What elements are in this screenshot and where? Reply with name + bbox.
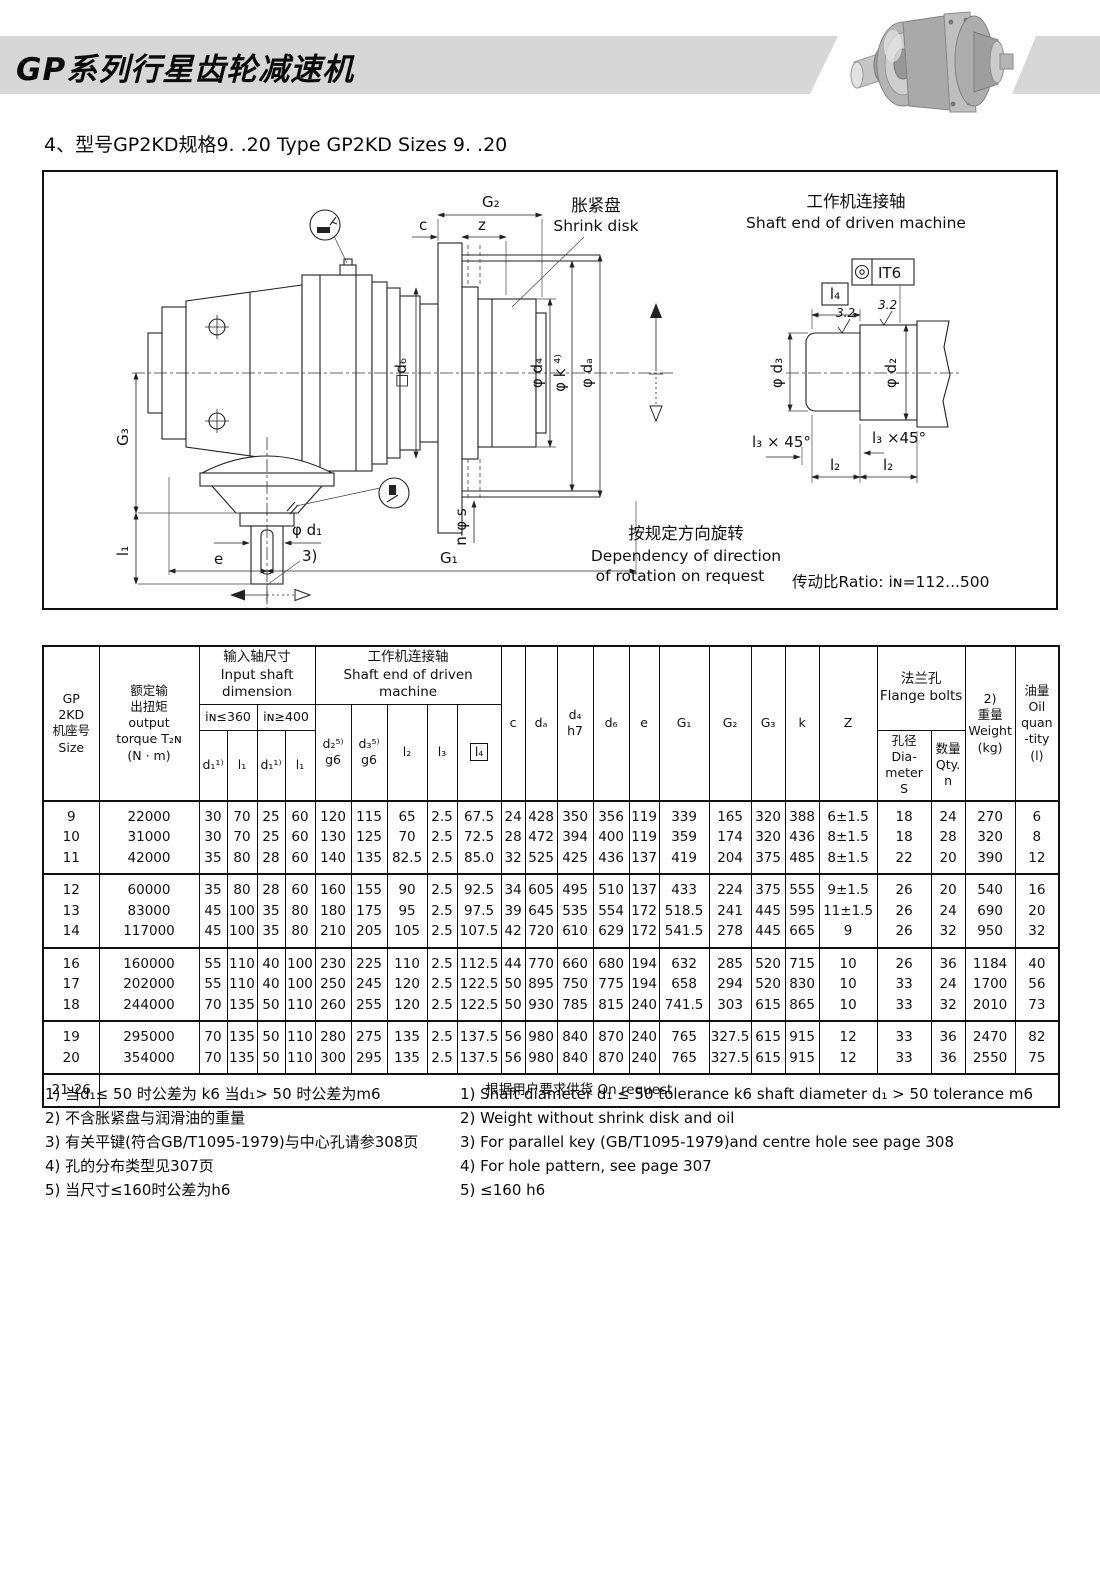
technical-drawing-box: G₂ c z G₃ l₁ e G₁ φ d₁: [42, 170, 1058, 610]
spec-cell: 280 300: [315, 1021, 351, 1074]
spec-cell: 119 119 137: [629, 801, 659, 875]
spec-cell: 6±1.5 8±1.5 8±1.5: [819, 801, 877, 875]
col-l3: l₃: [427, 704, 457, 801]
spec-cell: 80 100 100: [227, 874, 257, 948]
spec-cell: 60 80 80: [285, 874, 315, 948]
rotation-note-cn: 按规定方向旋转: [628, 524, 744, 543]
rotation-direction-arrow: [649, 303, 663, 421]
footnote-en-3: 3) For parallel key (GB/T1095-1979)and c…: [460, 1130, 1060, 1154]
spec-cell: 36 36: [931, 1021, 965, 1074]
dim-e: e: [214, 550, 223, 568]
dim-d2: φ d₂: [882, 358, 900, 388]
svg-text:3.2: 3.2: [836, 306, 855, 320]
col-d4: d₄ h7: [557, 646, 593, 801]
dim-d4: φ d₄: [528, 358, 546, 388]
spec-cell: 92.5 97.5 107.5: [457, 874, 501, 948]
spec-cell: 2.5 2.5 2.5: [427, 801, 457, 875]
col-d1-400: d₁¹⁾: [257, 730, 285, 801]
col-l1-400: l₁: [285, 730, 315, 801]
spec-cell: 40 56 73: [1015, 948, 1059, 1022]
dim-ns: n-φ s: [452, 508, 470, 546]
spec-cell: 100 100 110: [285, 948, 315, 1022]
dim-d3: φ d₃: [768, 358, 786, 388]
spec-table-body: 9 10 1122000 31000 4200030 30 3570 70 80…: [43, 801, 1059, 1075]
col-in360: iɴ≤360: [199, 704, 257, 730]
footnotes-cn: 1) 当d₁≤ 50 时公差为 k6 当d₁> 50 时公差为m6 2) 不含胀…: [45, 1082, 485, 1202]
col-bolt-dia: 孔径 Dia-meter S: [877, 730, 931, 801]
col-oil: 油量 Oil quan -tity (l): [1015, 646, 1059, 801]
spec-cell: 18 18 22: [877, 801, 931, 875]
spec-cell: 82 75: [1015, 1021, 1059, 1074]
spec-cell: 224 241 278: [709, 874, 751, 948]
dim-k: φ k ⁴⁾: [551, 354, 569, 392]
footnote-3-callout: 3): [302, 547, 317, 565]
spec-cell: 60000 83000 117000: [99, 874, 199, 948]
dim-d6: □d₆: [392, 358, 410, 388]
spec-cell: 50 50: [257, 1021, 285, 1074]
spec-cell: 433 518.5 541.5: [659, 874, 709, 948]
table-group-row: 19 20295000 35400070 70135 13550 50110 1…: [43, 1021, 1059, 1074]
spec-cell: 510 554 629: [593, 874, 629, 948]
shrink-disk-label-en: Shrink disk: [553, 217, 638, 235]
spec-cell: 70 70: [199, 1021, 227, 1074]
col-in400: iɴ≥400: [257, 704, 315, 730]
spec-cell: 270 320 390: [965, 801, 1015, 875]
table-group-row: 16 17 18160000 202000 24400055 55 70110 …: [43, 948, 1059, 1022]
footnotes-en: 1) Shaft diameter d₁ ≤ 50 tolerance k6 s…: [460, 1082, 1060, 1202]
col-e: e: [629, 646, 659, 801]
spec-cell: 2470 2550: [965, 1021, 1015, 1074]
spec-cell: 9 10 11: [43, 801, 99, 875]
footnote-cn-3: 3) 有关平键(符合GB/T1095-1979)与中心孔请参308页: [45, 1130, 485, 1154]
spec-cell: 680 775 815: [593, 948, 629, 1022]
spec-cell: 135 135: [227, 1021, 257, 1074]
col-d1-360: d₁¹⁾: [199, 730, 227, 801]
spec-cell: 24 28 20: [931, 801, 965, 875]
spec-cell: 65 70 82.5: [387, 801, 427, 875]
spec-cell: 70 70 80: [227, 801, 257, 875]
footnote-cn-1: 1) 当d₁≤ 50 时公差为 k6 当d₁> 50 时公差为m6: [45, 1082, 485, 1106]
dim-l2-right: l₂: [883, 456, 893, 474]
spec-cell: 540 690 950: [965, 874, 1015, 948]
spec-cell: 12 13 14: [43, 874, 99, 948]
spec-cell: 22000 31000 42000: [99, 801, 199, 875]
catalog-page: GP系列行星齿轮减速机 4、型号GP2KD规格9. .20 Type GP2KD…: [0, 0, 1100, 1583]
spec-cell: 165 174 204: [709, 801, 751, 875]
col-g3: G₃: [751, 646, 785, 801]
dim-l4: l₄: [830, 285, 840, 303]
shaft-end-label-cn: 工作机连接轴: [807, 192, 906, 211]
spec-cell: 35 45 45: [199, 874, 227, 948]
col-l2: l₂: [387, 704, 427, 801]
page-title: GP系列行星齿轮减速机: [16, 44, 354, 89]
col-g1: G₁: [659, 646, 709, 801]
col-d2: d₂⁵⁾ g6: [315, 704, 351, 801]
spec-cell: 495 535 610: [557, 874, 593, 948]
spec-cell: 2.5 2.5 2.5: [427, 948, 457, 1022]
spec-table: GP 2KD 机座号 Size 额定输 出扭矩 output torque T₂…: [42, 645, 1060, 1108]
technical-drawing: G₂ c z G₃ l₁ e G₁ φ d₁: [44, 172, 1056, 608]
col-k: k: [785, 646, 819, 801]
col-c: c: [501, 646, 525, 801]
spec-cell: 16 17 18: [43, 948, 99, 1022]
spec-cell: 10 10 10: [819, 948, 877, 1022]
col-g2: G₂: [709, 646, 751, 801]
col-group-shaft-end: 工作机连接轴 Shaft end of driven machine: [315, 646, 501, 704]
spec-cell: 9±1.5 11±1.5 9: [819, 874, 877, 948]
spec-cell: 25 25 28: [257, 801, 285, 875]
spec-cell: 230 250 260: [315, 948, 351, 1022]
spec-cell: 33 33: [877, 1021, 931, 1074]
spec-cell: 350 394 425: [557, 801, 593, 875]
shrink-disk-label-cn: 胀紧盘: [571, 196, 621, 215]
axial-direction-arrow: [230, 588, 310, 602]
col-l1-360: l₁: [227, 730, 257, 801]
spec-cell: 56 56: [501, 1021, 525, 1074]
dim-z: z: [478, 216, 486, 234]
spec-cell: 915 915: [785, 1021, 819, 1074]
col-size: GP 2KD 机座号 Size: [43, 646, 99, 801]
it6-tolerance-frame: IT6: [852, 259, 914, 323]
spec-cell: 295000 354000: [99, 1021, 199, 1074]
spec-cell: 26 33 33: [877, 948, 931, 1022]
svg-text:3.2: 3.2: [878, 298, 897, 312]
col-d6: d₆: [593, 646, 629, 801]
spec-cell: 715 830 865: [785, 948, 819, 1022]
col-group-flange-bolts: 法兰孔 Flange bolts: [877, 646, 965, 730]
spec-cell: 110 110 135: [227, 948, 257, 1022]
spec-cell: 20 24 32: [931, 874, 965, 948]
dim-g2: G₂: [482, 193, 500, 211]
it6-label: IT6: [878, 264, 901, 282]
shaft-end-label-en: Shaft end of driven machine: [746, 214, 966, 232]
spec-cell: 55 55 70: [199, 948, 227, 1022]
spec-cell: 12 12: [819, 1021, 877, 1074]
footnote-en-4: 4) For hole pattern, see page 307: [460, 1154, 1060, 1178]
spec-cell: 327.5 327.5: [709, 1021, 751, 1074]
spec-cell: 375 445 445: [751, 874, 785, 948]
spec-cell: 6 8 12: [1015, 801, 1059, 875]
spec-cell: 16 20 32: [1015, 874, 1059, 948]
spec-cell: 40 40 50: [257, 948, 285, 1022]
col-da: dₐ: [525, 646, 557, 801]
rotation-note-en2: of rotation on request: [596, 567, 765, 585]
spec-cell: 24 28 32: [501, 801, 525, 875]
spec-cell: 36 24 32: [931, 948, 965, 1022]
spec-cell: 160 180 210: [315, 874, 351, 948]
spec-cell: 67.5 72.5 85.0: [457, 801, 501, 875]
spec-table-header: GP 2KD 机座号 Size 额定输 出扭矩 output torque T₂…: [43, 646, 1059, 801]
col-d3: d₃⁵⁾ g6: [351, 704, 387, 801]
oil-fill-icon: [310, 210, 340, 240]
shaft-end-detail-view: 工作机连接轴 Shaft end of driven machine IT6 l…: [746, 192, 966, 483]
spec-cell: 632 658 741.5: [659, 948, 709, 1022]
col-torque: 额定输 出扭矩 output torque T₂ɴ (N · m): [99, 646, 199, 801]
spec-cell: 155 175 205: [351, 874, 387, 948]
footnote-cn-2: 2) 不含胀紧盘与润滑油的重量: [45, 1106, 485, 1130]
spec-cell: 19 20: [43, 1021, 99, 1074]
spec-cell: 356 400 436: [593, 801, 629, 875]
spec-cell: 240 240: [629, 1021, 659, 1074]
dim-da: φ dₐ: [578, 358, 596, 388]
col-bolt-qty: 数量 Qty. n: [931, 730, 965, 801]
spec-cell: 2.5 2.5 2.5: [427, 874, 457, 948]
spec-cell: 870 870: [593, 1021, 629, 1074]
footnote-en-5: 5) ≤160 h6: [460, 1178, 1060, 1202]
dim-l2-left: l₂: [830, 456, 840, 474]
spec-cell: 28 35 35: [257, 874, 285, 948]
spec-cell: 110 120 120: [387, 948, 427, 1022]
spec-cell: 320 320 375: [751, 801, 785, 875]
dim-g1: G₁: [440, 549, 458, 567]
spec-cell: 44 50 50: [501, 948, 525, 1022]
spec-cell: 1184 1700 2010: [965, 948, 1015, 1022]
spec-cell: 120 130 140: [315, 801, 351, 875]
spec-cell: 194 194 240: [629, 948, 659, 1022]
spec-cell: 225 245 255: [351, 948, 387, 1022]
spec-cell: 160000 202000 244000: [99, 948, 199, 1022]
col-group-input-shaft: 输入轴尺寸 Input shaft dimension: [199, 646, 315, 704]
dim-l3-right: l₃ ×45°: [872, 429, 926, 447]
footnote-cn-4: 4) 孔的分布类型见307页: [45, 1154, 485, 1178]
spec-cell: 60 60 60: [285, 801, 315, 875]
spec-cell: 555 595 665: [785, 874, 819, 948]
spec-cell: 388 436 485: [785, 801, 819, 875]
spec-cell: 137 172 172: [629, 874, 659, 948]
section-subtitle: 4、型号GP2KD规格9. .20 Type GP2KD Sizes 9. .2…: [44, 130, 507, 157]
spec-cell: 137.5 137.5: [457, 1021, 501, 1074]
spec-cell: 428 472 525: [525, 801, 557, 875]
spec-cell: 765 765: [659, 1021, 709, 1074]
spec-cell: 34 39 42: [501, 874, 525, 948]
footnote-en-1: 1) Shaft diameter d₁ ≤ 50 tolerance k6 s…: [460, 1082, 1060, 1106]
spec-cell: 275 295: [351, 1021, 387, 1074]
col-z: Z: [819, 646, 877, 801]
spec-cell: 26 26 26: [877, 874, 931, 948]
ratio-note: 传动比Ratio: iɴ=112...500: [792, 573, 990, 591]
spec-cell: 605 645 720: [525, 874, 557, 948]
spec-cell: 840 840: [557, 1021, 593, 1074]
table-group-row: 12 13 1460000 83000 11700035 45 4580 100…: [43, 874, 1059, 948]
gearbox-product-photo: [848, 6, 1018, 124]
spec-cell: 2.5 2.5: [427, 1021, 457, 1074]
rotation-note-en1: Dependency of direction: [591, 547, 781, 565]
col-weight: 2) 重量 Weight (kg): [965, 646, 1015, 801]
footnote-en-2: 2) Weight without shrink disk and oil: [460, 1106, 1060, 1130]
spec-cell: 339 359 419: [659, 801, 709, 875]
spec-cell: 615 615: [751, 1021, 785, 1074]
spec-cell: 90 95 105: [387, 874, 427, 948]
dim-d1: φ d₁: [292, 521, 322, 539]
dim-g3: G₃: [114, 428, 132, 446]
col-l4: l₄: [457, 704, 501, 801]
spec-cell: 980 980: [525, 1021, 557, 1074]
table-group-row: 9 10 1122000 31000 4200030 30 3570 70 80…: [43, 801, 1059, 875]
oil-drain-icon: [379, 478, 409, 508]
spec-cell: 110 110: [285, 1021, 315, 1074]
spec-cell: 285 294 303: [709, 948, 751, 1022]
spec-cell: 520 520 615: [751, 948, 785, 1022]
dim-l1: l₁: [114, 546, 132, 556]
header-banner-right-shape: [1012, 36, 1100, 94]
spec-cell: 112.5 122.5 122.5: [457, 948, 501, 1022]
spec-cell: 660 750 785: [557, 948, 593, 1022]
spec-cell: 115 125 135: [351, 801, 387, 875]
footnote-cn-5: 5) 当尺寸≤160时公差为h6: [45, 1178, 485, 1202]
spec-cell: 135 135: [387, 1021, 427, 1074]
dim-c: c: [419, 216, 427, 234]
spec-cell: 30 30 35: [199, 801, 227, 875]
spec-cell: 770 895 930: [525, 948, 557, 1022]
